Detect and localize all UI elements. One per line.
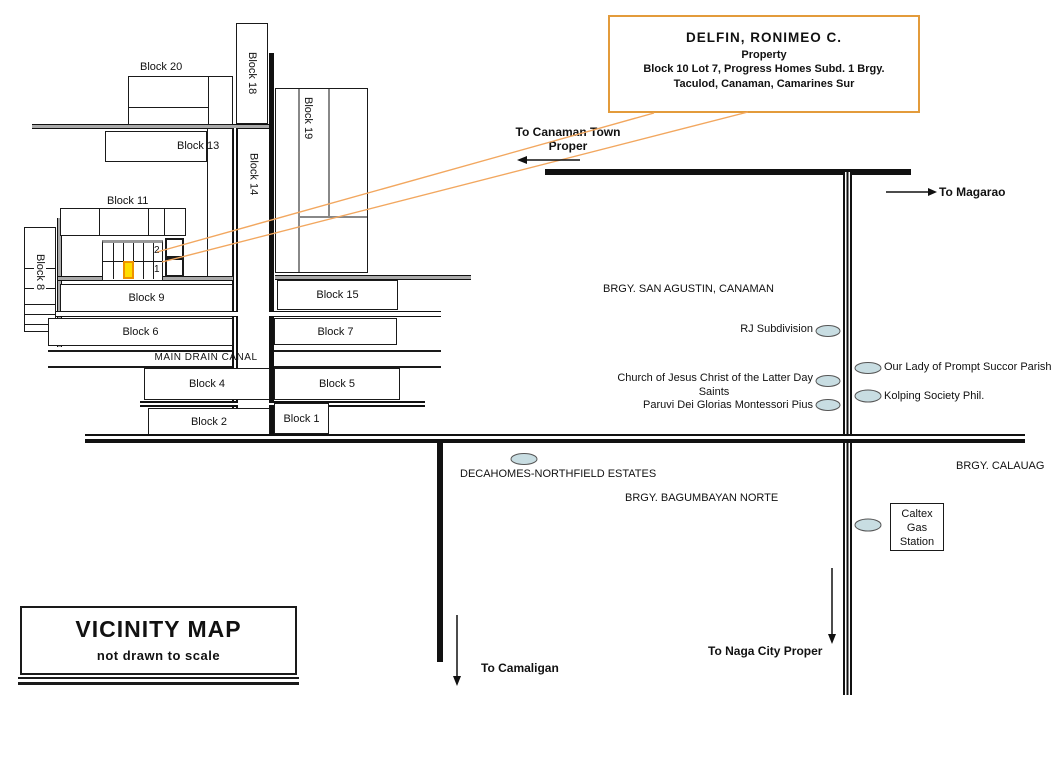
- marker-caltex: [855, 519, 881, 531]
- divider-line: [164, 209, 165, 235]
- block-13-label: Block 13: [177, 140, 219, 152]
- legend-underline-1: [18, 677, 299, 679]
- block-1-label: Block 1: [283, 413, 319, 425]
- block-4: Block 4: [144, 368, 270, 400]
- block-7: Block 7: [274, 318, 397, 345]
- legend-title: VICINITY MAP: [22, 616, 295, 643]
- divider-line: [298, 216, 367, 218]
- property-lot: [123, 261, 134, 279]
- kolping-society-label: Kolping Society Phil.: [884, 390, 984, 402]
- decahomes-label: DECAHOMES-NORTHFIELD ESTATES: [460, 468, 656, 480]
- lot-row-1-label: 1: [154, 264, 160, 275]
- marker-kolping-society: [855, 390, 881, 402]
- caltex-label-line1: Caltex: [891, 508, 943, 522]
- block-18: Block 18: [236, 23, 268, 124]
- arrow-to-camaligan: [453, 615, 461, 686]
- our-lady-parish-label: Our Lady of Prompt Succor Parish: [884, 361, 1052, 373]
- divider-line: [25, 304, 55, 305]
- arrow-to-magarao: [886, 188, 937, 196]
- block-20-label: Block 20: [140, 61, 182, 73]
- brgy-san-agustin-label: BRGY. SAN AGUSTIN, CANAMAN: [603, 283, 774, 295]
- block-15-label: Block 15: [316, 289, 358, 301]
- callout-property-label: Property: [610, 48, 918, 62]
- divider-line: [208, 77, 209, 124]
- marker-our-lady-parish: [855, 363, 881, 374]
- road-camaligan-vertical: [437, 443, 443, 662]
- block-9: Block 9: [60, 284, 233, 312]
- block-15: Block 15: [277, 280, 398, 310]
- block-19-label: Block 19: [302, 97, 314, 139]
- block-2-label: Block 2: [191, 416, 227, 428]
- block-6-label: Block 6: [122, 326, 158, 338]
- callout-address-line1: Block 10 Lot 7, Progress Homes Subd. 1 B…: [610, 62, 918, 76]
- block-5-label: Block 5: [319, 378, 355, 390]
- legend-subtitle: not drawn to scale: [22, 648, 295, 663]
- marker-decahomes: [511, 454, 537, 465]
- callout-owner-name: DELFIN, RONIMEO C.: [610, 30, 918, 45]
- legend-box: VICINITY MAP not drawn to scale: [20, 606, 297, 675]
- brgy-bagumbayan-label: BRGY. BAGUMBAYAN NORTE: [625, 492, 778, 504]
- block-1: Block 1: [274, 403, 329, 434]
- to-naga-label: To Naga City Proper: [708, 644, 822, 658]
- rj-subdivision-label: RJ Subdivision: [703, 323, 813, 335]
- block-18-label: Block 18: [246, 52, 258, 94]
- vicinity-map: Block 20 Block 18 Block 13 Block 14 Bloc…: [0, 0, 1056, 768]
- block-4-label: Block 4: [189, 378, 225, 390]
- divider-line: [298, 89, 300, 272]
- marker-paruvi-montessori: [816, 400, 840, 411]
- road-magarao-horizontal: [545, 169, 911, 175]
- divider-line: [113, 243, 114, 279]
- to-magarao-label: To Magarao: [939, 185, 1005, 199]
- marker-lds-church: [816, 376, 840, 387]
- paruvi-montessori-label: Paruvi Dei Glorias Montessori Pius: [615, 399, 813, 411]
- marker-rj-subdivision: [816, 326, 840, 337]
- lot-grid: 2 1: [102, 240, 163, 281]
- block-2: Block 2: [148, 408, 270, 435]
- lot-row-2-label: 2: [154, 245, 160, 256]
- brgy-calauag-label: BRGY. CALAUAG: [956, 460, 1044, 472]
- divider-line: [143, 243, 144, 279]
- block-20: [128, 76, 233, 125]
- arrow-to-canaman: [517, 156, 580, 164]
- divider-line: [25, 314, 55, 315]
- block-6: Block 6: [48, 318, 233, 346]
- block-8-label: Block 8: [34, 254, 46, 290]
- block-11: [60, 208, 186, 236]
- callout-address-line2: Taculod, Canaman, Camarines Sur: [610, 77, 918, 91]
- block-8: Block 8: [24, 227, 56, 332]
- callout: DELFIN, RONIMEO C. Property Block 10 Lot…: [608, 15, 920, 113]
- to-canaman-label: To Canaman Town Proper: [508, 126, 628, 154]
- lds-church-label-line1: Church of Jesus Christ of the Latter Day: [615, 372, 813, 384]
- divider-line: [148, 209, 149, 235]
- caltex-gas-station-box: Caltex Gas Station: [890, 503, 944, 551]
- block-7-label: Block 7: [317, 326, 353, 338]
- to-camaligan-label: To Camaligan: [481, 661, 559, 675]
- road-main-horizontal: [85, 434, 1025, 443]
- main-drain-canal-label: MAIN DRAIN CANAL: [150, 352, 262, 363]
- lds-church-label-line2: Saints: [615, 386, 813, 398]
- block-11-label: Block 11: [107, 195, 148, 207]
- block-5: Block 5: [274, 368, 400, 400]
- caltex-label-line3: Station: [891, 536, 943, 550]
- arrow-to-naga: [828, 568, 836, 644]
- legend-underline-2: [18, 682, 299, 685]
- divider-line: [129, 107, 208, 108]
- block-19: Block 19: [275, 88, 368, 273]
- block-14-label: Block 14: [248, 153, 260, 195]
- block-9-label: Block 9: [128, 292, 164, 304]
- small-lot-box-lower: [165, 258, 184, 277]
- small-lot-box-upper: [165, 238, 184, 258]
- divider-line: [99, 209, 100, 235]
- divider-line: [328, 89, 330, 216]
- caltex-label-line2: Gas: [891, 522, 943, 536]
